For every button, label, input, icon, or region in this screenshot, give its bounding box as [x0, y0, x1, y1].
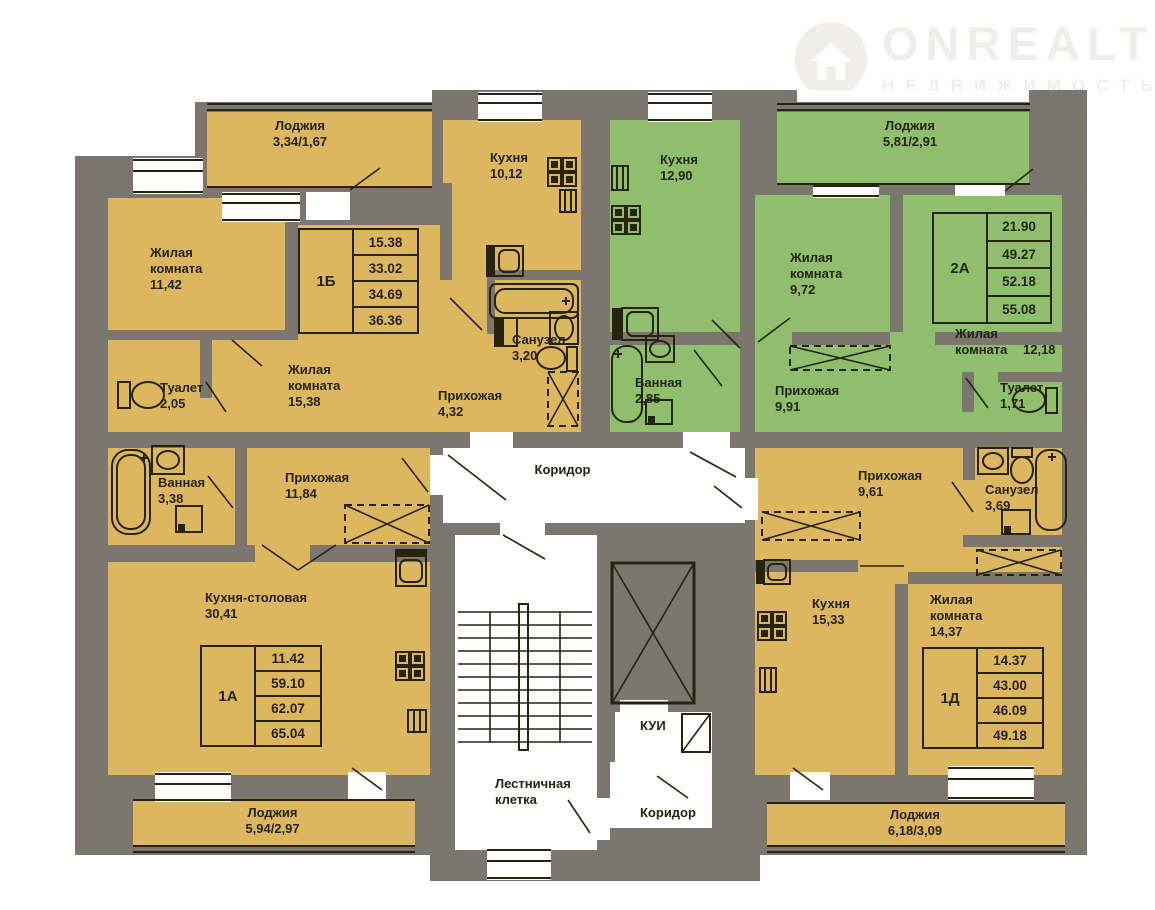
- stove-icon: [758, 612, 786, 640]
- window-icon: [648, 92, 712, 122]
- label-living2-1b: Жилая комната15,38: [288, 362, 373, 410]
- label-living-1d: Жилая комната14,37: [930, 592, 1015, 640]
- stat-table-1d: 1Д 14.37 43.00 46.09 49.18: [922, 647, 1044, 749]
- label-bath-2a: Ванная2,85: [635, 375, 705, 407]
- stove-icon: [396, 652, 424, 680]
- balcony-door-icon: [955, 184, 1005, 196]
- window-icon: [948, 766, 1034, 800]
- label-stairwell: Лестничная клетка: [495, 776, 595, 808]
- label-toilet-1b: Туалет2,05: [160, 380, 230, 412]
- label-loggia-1d: Лоджия6,18/3,09: [830, 807, 1000, 839]
- window-icon: [487, 848, 551, 880]
- label-loggia-2a: Лоджия5,81/2,91: [820, 118, 1000, 150]
- label-bath-1a: Ванная3,38: [158, 475, 233, 507]
- label-corridor-lower: Коридор: [640, 805, 710, 821]
- label-loggia-1a: Лоджия5,94/2,97: [190, 805, 355, 837]
- label-utility: КУИ: [640, 718, 685, 734]
- balcony-door-icon: [790, 772, 830, 800]
- window-icon: [222, 192, 300, 222]
- balcony-door-icon: [348, 772, 386, 800]
- balcony-door-icon: [306, 192, 350, 220]
- stove-icon: [612, 206, 640, 234]
- label-bathroom-1d: Санузел3,69: [985, 482, 1055, 514]
- label-living1-2a: Жилая комната9,72: [790, 250, 870, 298]
- label-kitchen-1d: Кухня15,33: [812, 596, 882, 628]
- label-hall-1d: Прихожая9,61: [858, 468, 953, 500]
- label-hall-1b: Прихожая4,32: [438, 388, 533, 420]
- label-hall-1a: Прихожая11,84: [285, 470, 380, 502]
- window-icon: [813, 184, 879, 198]
- label-bathroom-1b: Санузел3,20: [512, 332, 582, 364]
- stat-table-2a: 2А 21.90 49.27 52.18 55.08: [932, 212, 1052, 324]
- window-icon: [133, 158, 203, 194]
- stat-table-1a: 1А 11.42 59.10 62.07 65.04: [200, 645, 322, 747]
- window-icon: [155, 772, 231, 802]
- label-toilet-2a: Туалет1,71: [1000, 380, 1070, 412]
- room-hall-1a: [247, 448, 430, 562]
- floorplan-page: ONREALT НЕДВИЖИМОСТЬ: [0, 0, 1155, 910]
- label-hall-2a: Прихожая9,91: [775, 383, 870, 415]
- label-corridor: Коридор: [510, 462, 615, 478]
- stat-table-1b: 1Б 15.38 33.02 34.69 36.36: [298, 228, 419, 334]
- label-kitchen-2a: Кухня12,90: [660, 152, 740, 184]
- label-loggia-1b: Лоджия3,34/1,67: [210, 118, 390, 150]
- window-icon: [478, 92, 542, 122]
- label-living2-2a: Жилая комната 12,18: [955, 326, 1073, 358]
- room-doorway-1b: [443, 278, 487, 340]
- label-kitchen-dining-1a: Кухня-столовая30,41: [205, 590, 365, 622]
- label-kitchen-1b: Кухня10,12: [490, 150, 560, 182]
- label-living1-1b: Жилая комната11,42: [150, 245, 230, 293]
